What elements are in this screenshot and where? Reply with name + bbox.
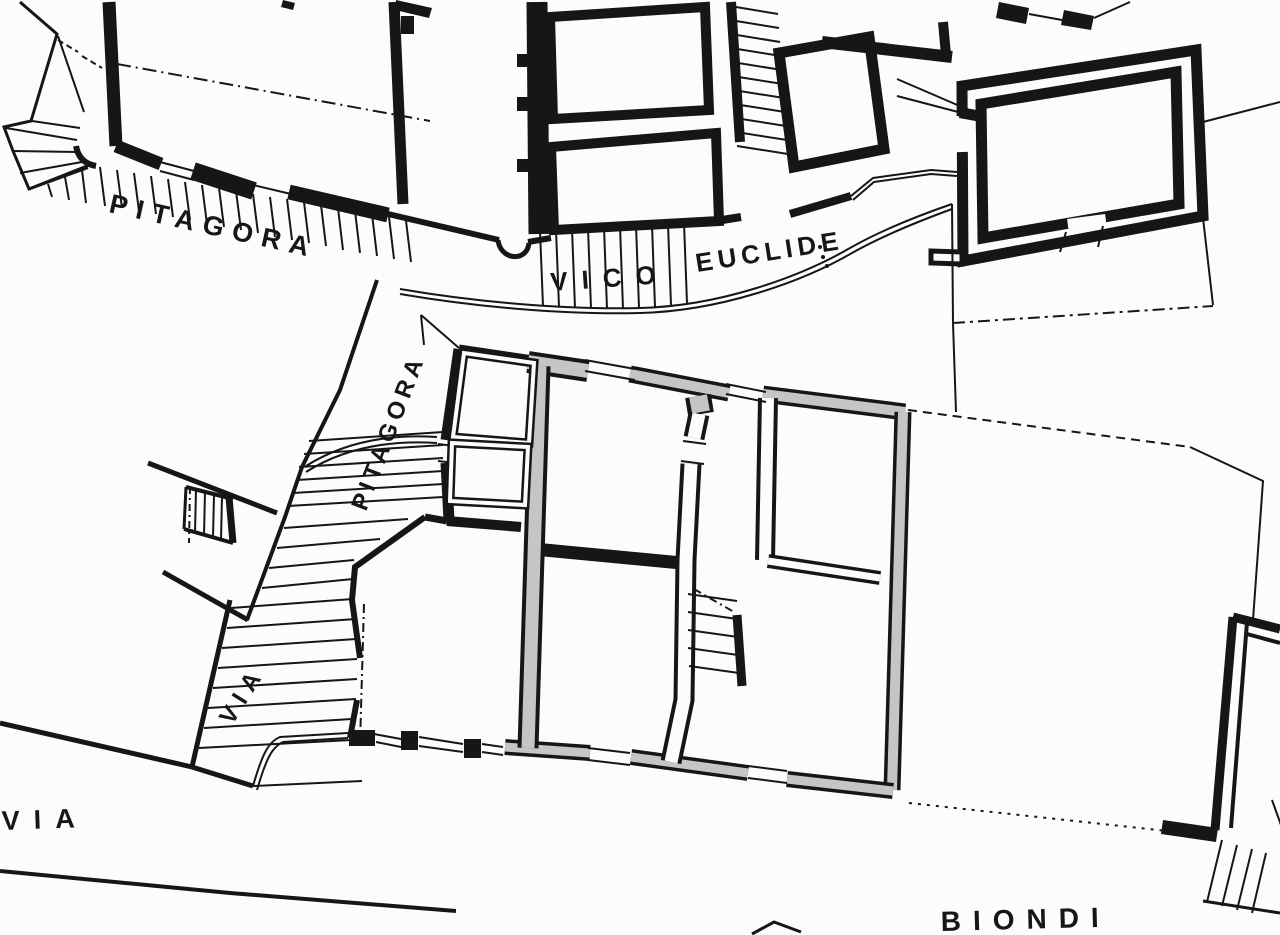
northeast-building <box>897 50 1280 305</box>
street-label-vico: VICO <box>549 259 670 297</box>
street-label-via-bottom: VIA <box>1 803 89 836</box>
street-label-pitagora-side: PITAGORA <box>346 351 430 515</box>
street-label-via-side: VIA <box>214 661 271 730</box>
street-label-euclide: EUCLIDE <box>693 225 845 278</box>
northwest-building <box>109 0 432 215</box>
north-central-rooms <box>401 2 719 234</box>
main-excavated-building <box>349 349 905 791</box>
street-label-biondi: BIONDI <box>940 902 1111 935</box>
interior-staircase <box>688 589 742 686</box>
small-staircase <box>184 487 233 543</box>
southeast-building <box>1203 617 1280 913</box>
west-corner-steps <box>4 2 102 189</box>
street-labels: PITAGORA VICO EUCLIDE PITAGORA VIA VIA B… <box>1 189 1111 935</box>
street-label-pitagora-top: PITAGORA <box>107 189 321 264</box>
door-thresholds <box>374 360 787 783</box>
stepped-lane-north <box>730 2 884 167</box>
site-plan-screenshot: PITAGORA VICO EUCLIDE PITAGORA VIA VIA B… <box>0 0 1280 935</box>
site-plan-map: PITAGORA VICO EUCLIDE PITAGORA VIA VIA B… <box>0 0 1280 935</box>
northeast-wall-stubs <box>822 2 1130 57</box>
